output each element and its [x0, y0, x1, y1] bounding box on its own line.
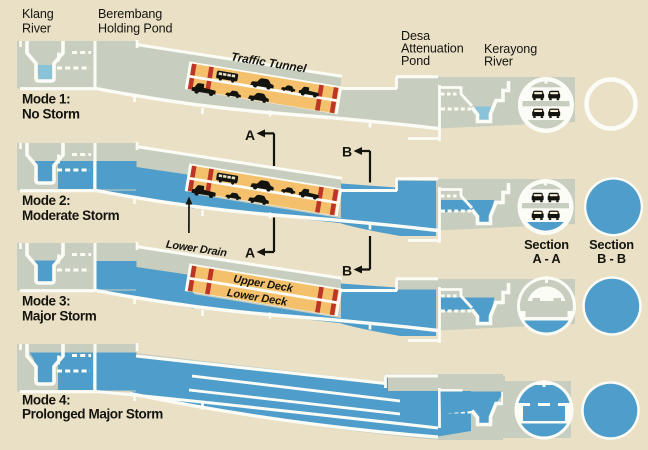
svg-text:A - A: A - A: [533, 251, 561, 266]
svg-text:B: B: [342, 144, 352, 160]
svg-text:Mode 4:: Mode 4:: [22, 393, 70, 408]
svg-text:A: A: [245, 127, 255, 143]
svg-text:Mode 1:: Mode 1:: [22, 92, 70, 107]
svg-text:River: River: [22, 22, 51, 36]
svg-text:Section: Section: [589, 237, 634, 252]
svg-text:Section: Section: [524, 237, 569, 252]
svg-text:Mode 3:: Mode 3:: [22, 294, 70, 309]
svg-text:A: A: [245, 245, 255, 261]
svg-text:Major Storm: Major Storm: [22, 309, 97, 324]
svg-text:Holding Pond: Holding Pond: [98, 22, 173, 36]
svg-text:B: B: [342, 263, 352, 279]
svg-text:B - B: B - B: [597, 251, 626, 266]
svg-text:Klang: Klang: [22, 7, 54, 21]
svg-text:River: River: [484, 55, 513, 69]
svg-text:Mode 2:: Mode 2:: [22, 193, 70, 208]
svg-text:Moderate Storm: Moderate Storm: [22, 208, 120, 223]
svg-text:Prolonged Major Storm: Prolonged Major Storm: [22, 407, 163, 422]
svg-text:Berembang: Berembang: [98, 7, 162, 21]
svg-text:No Storm: No Storm: [22, 107, 80, 122]
svg-text:Pond: Pond: [401, 54, 430, 68]
